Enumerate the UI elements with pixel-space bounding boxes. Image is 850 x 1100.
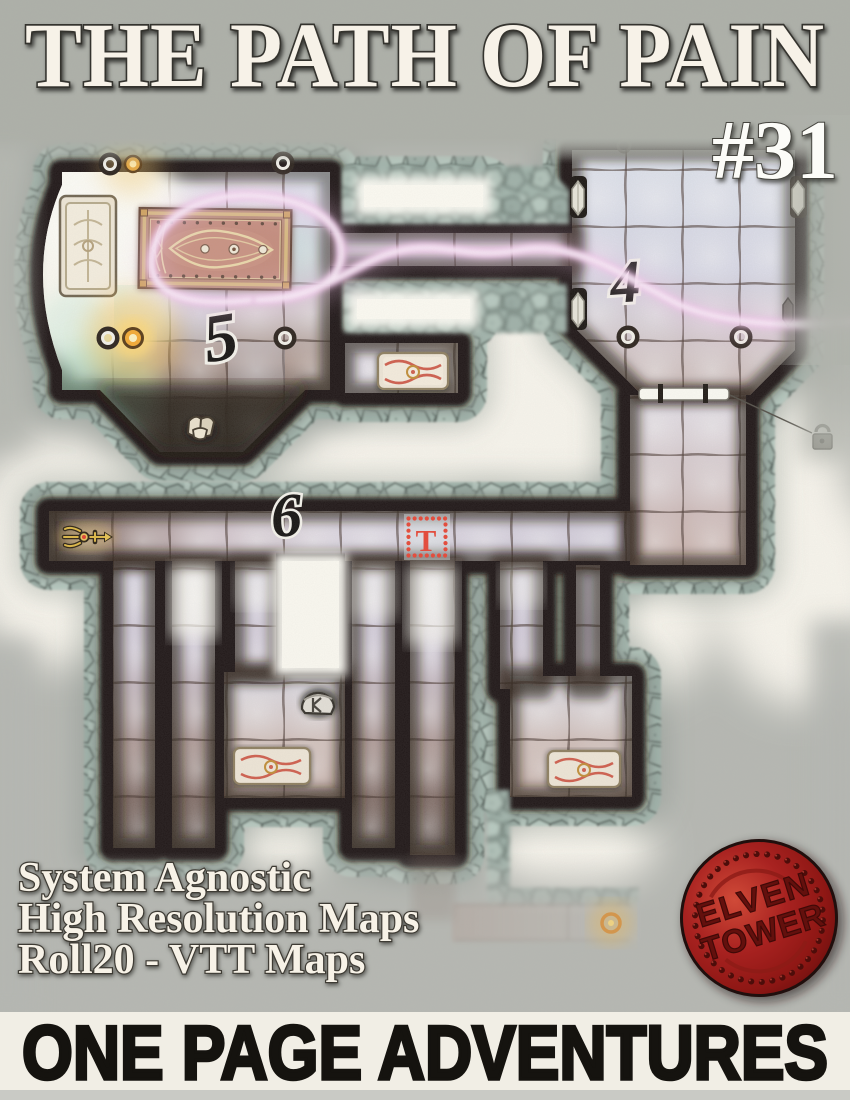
svg-text:ONE PAGE ADVENTURES: ONE PAGE ADVENTURES <box>22 1011 828 1096</box>
svg-text:#31: #31 <box>712 104 838 197</box>
svg-text:System Agnostic: System Agnostic <box>18 855 311 901</box>
svg-text:High Resolution Maps: High Resolution Maps <box>18 896 419 942</box>
svg-text:Roll20 - VTT Maps: Roll20 - VTT Maps <box>18 937 365 983</box>
svg-text:THE PATH OF PAIN: THE PATH OF PAIN <box>25 4 825 106</box>
